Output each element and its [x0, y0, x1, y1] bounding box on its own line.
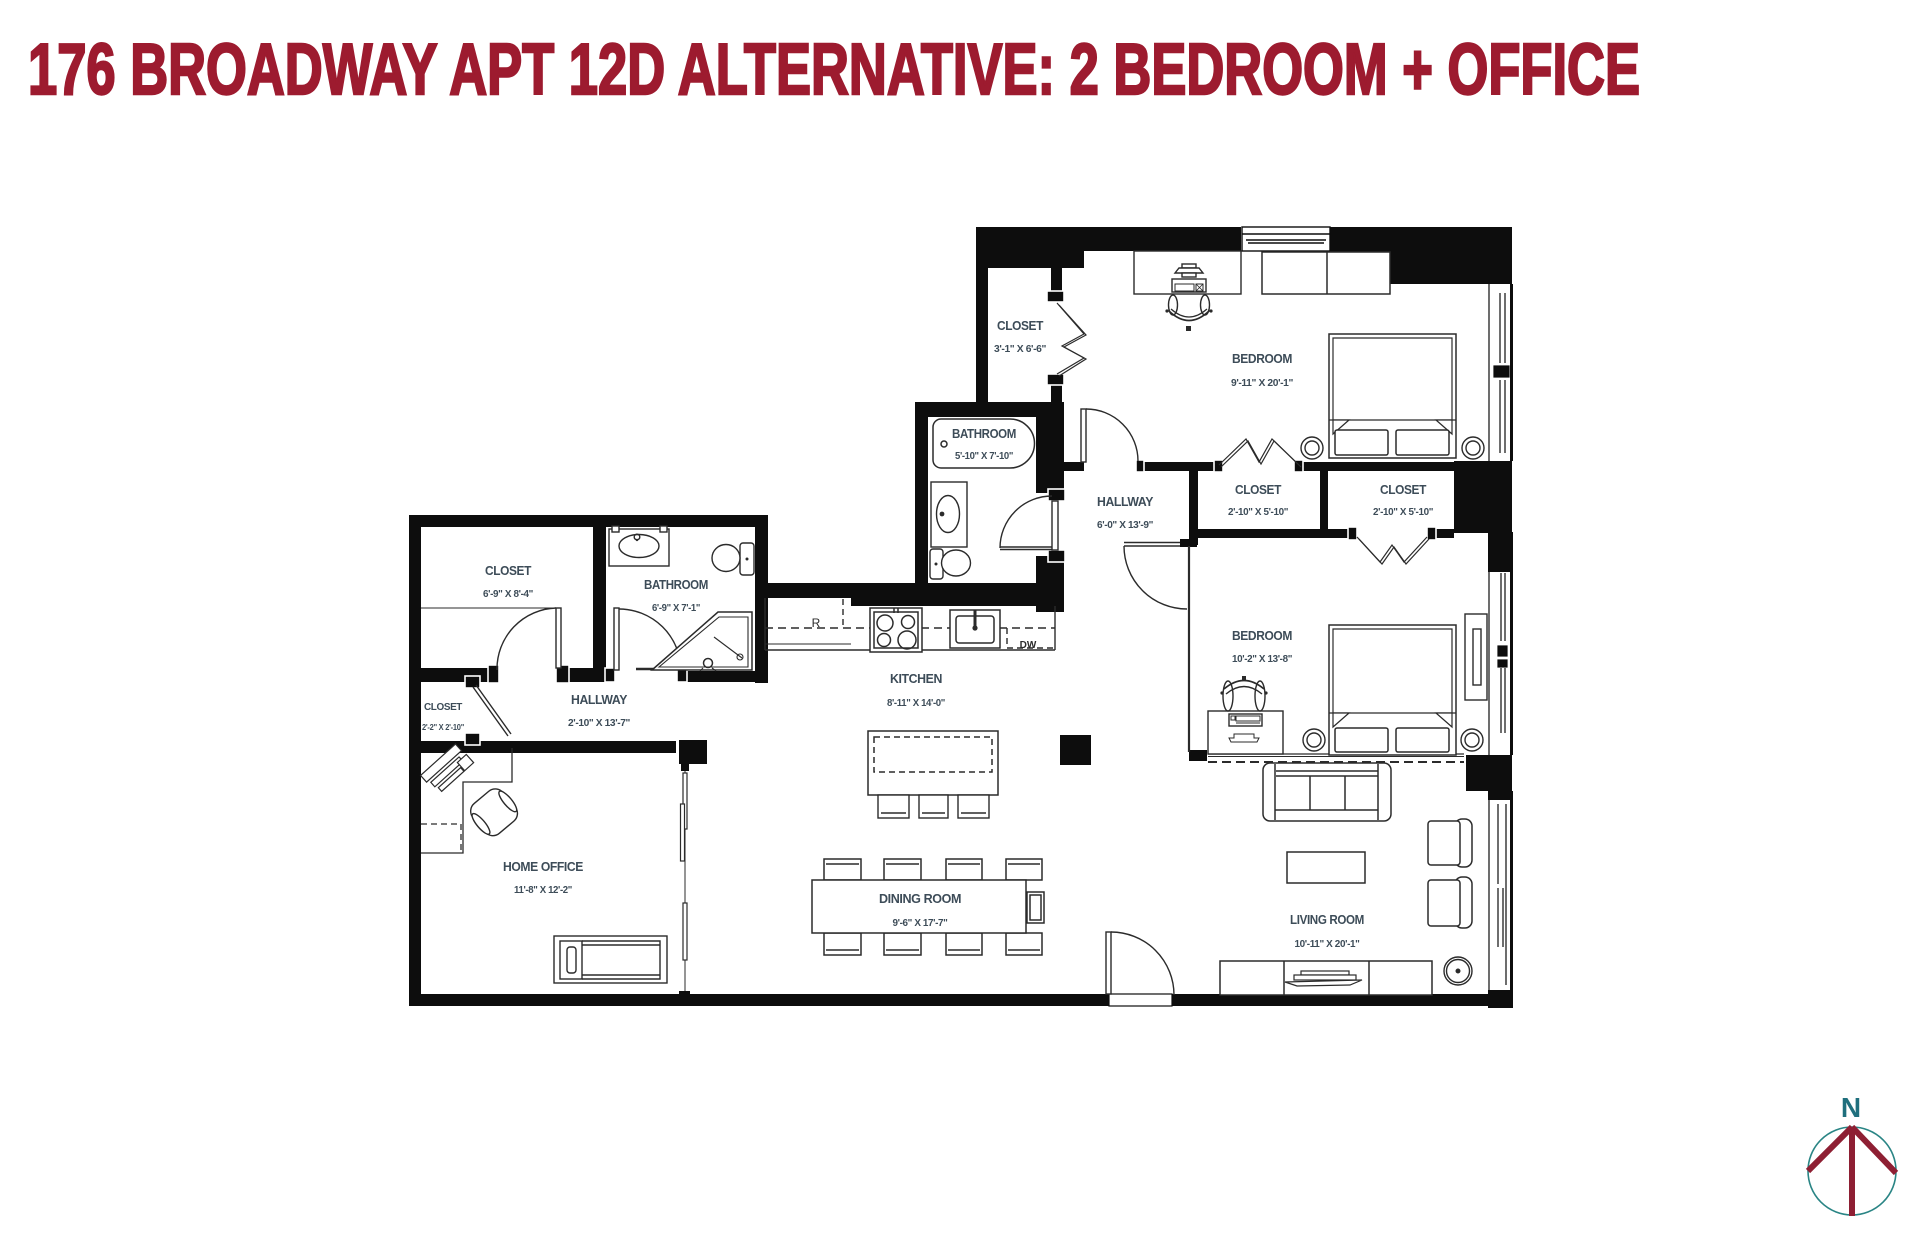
svg-text:CLOSET: CLOSET [1380, 483, 1427, 497]
svg-text:6'-9" X 8'-4": 6'-9" X 8'-4" [483, 588, 533, 600]
svg-text:5'-10" X 7'-10": 5'-10" X 7'-10" [955, 450, 1013, 462]
svg-text:176 BROADWAY APT 12D ALTERNATI: 176 BROADWAY APT 12D ALTERNATIVE: 2 BEDR… [28, 30, 1640, 110]
svg-text:10'-2" X 13'-8": 10'-2" X 13'-8" [1232, 653, 1292, 665]
svg-text:2'-10" X 5'-10": 2'-10" X 5'-10" [1228, 506, 1288, 518]
svg-text:CLOSET: CLOSET [424, 701, 463, 713]
svg-text:KITCHEN: KITCHEN [890, 672, 942, 686]
svg-text:HALLWAY: HALLWAY [571, 693, 628, 707]
svg-text:LIVING ROOM: LIVING ROOM [1290, 913, 1364, 927]
svg-text:CLOSET: CLOSET [485, 564, 532, 578]
svg-text:2'-2" X 2'-10": 2'-2" X 2'-10" [422, 722, 464, 732]
svg-text:CLOSET: CLOSET [1235, 483, 1282, 497]
svg-text:6'-9" X 7'-1": 6'-9" X 7'-1" [652, 602, 700, 614]
svg-text:DINING ROOM: DINING ROOM [879, 892, 961, 906]
svg-text:10'-11" X 20'-1": 10'-11" X 20'-1" [1295, 938, 1360, 950]
svg-text:BEDROOM: BEDROOM [1232, 629, 1292, 643]
svg-text:8'-11" X 14'-0": 8'-11" X 14'-0" [887, 697, 945, 709]
svg-text:3'-1" X 6'-6": 3'-1" X 6'-6" [994, 343, 1046, 355]
svg-text:DW: DW [1020, 640, 1037, 651]
svg-text:HOME OFFICE: HOME OFFICE [503, 860, 583, 874]
svg-text:2'-10" X 5'-10": 2'-10" X 5'-10" [1373, 506, 1433, 518]
svg-text:BATHROOM: BATHROOM [644, 578, 708, 592]
svg-text:R: R [812, 616, 821, 630]
svg-text:HALLWAY: HALLWAY [1097, 495, 1154, 509]
svg-text:9'-11" X 20'-1": 9'-11" X 20'-1" [1231, 377, 1293, 389]
svg-text:N: N [1841, 1092, 1861, 1123]
svg-text:2'-10" X 13'-7": 2'-10" X 13'-7" [568, 717, 630, 729]
svg-text:6'-0" X 13'-9": 6'-0" X 13'-9" [1097, 519, 1153, 531]
svg-text:11'-8" X 12'-2": 11'-8" X 12'-2" [514, 884, 572, 896]
svg-text:BATHROOM: BATHROOM [952, 427, 1016, 441]
svg-text:CLOSET: CLOSET [997, 319, 1044, 333]
svg-text:9'-6" X 17'-7": 9'-6" X 17'-7" [893, 917, 948, 929]
svg-text:BEDROOM: BEDROOM [1232, 352, 1292, 366]
